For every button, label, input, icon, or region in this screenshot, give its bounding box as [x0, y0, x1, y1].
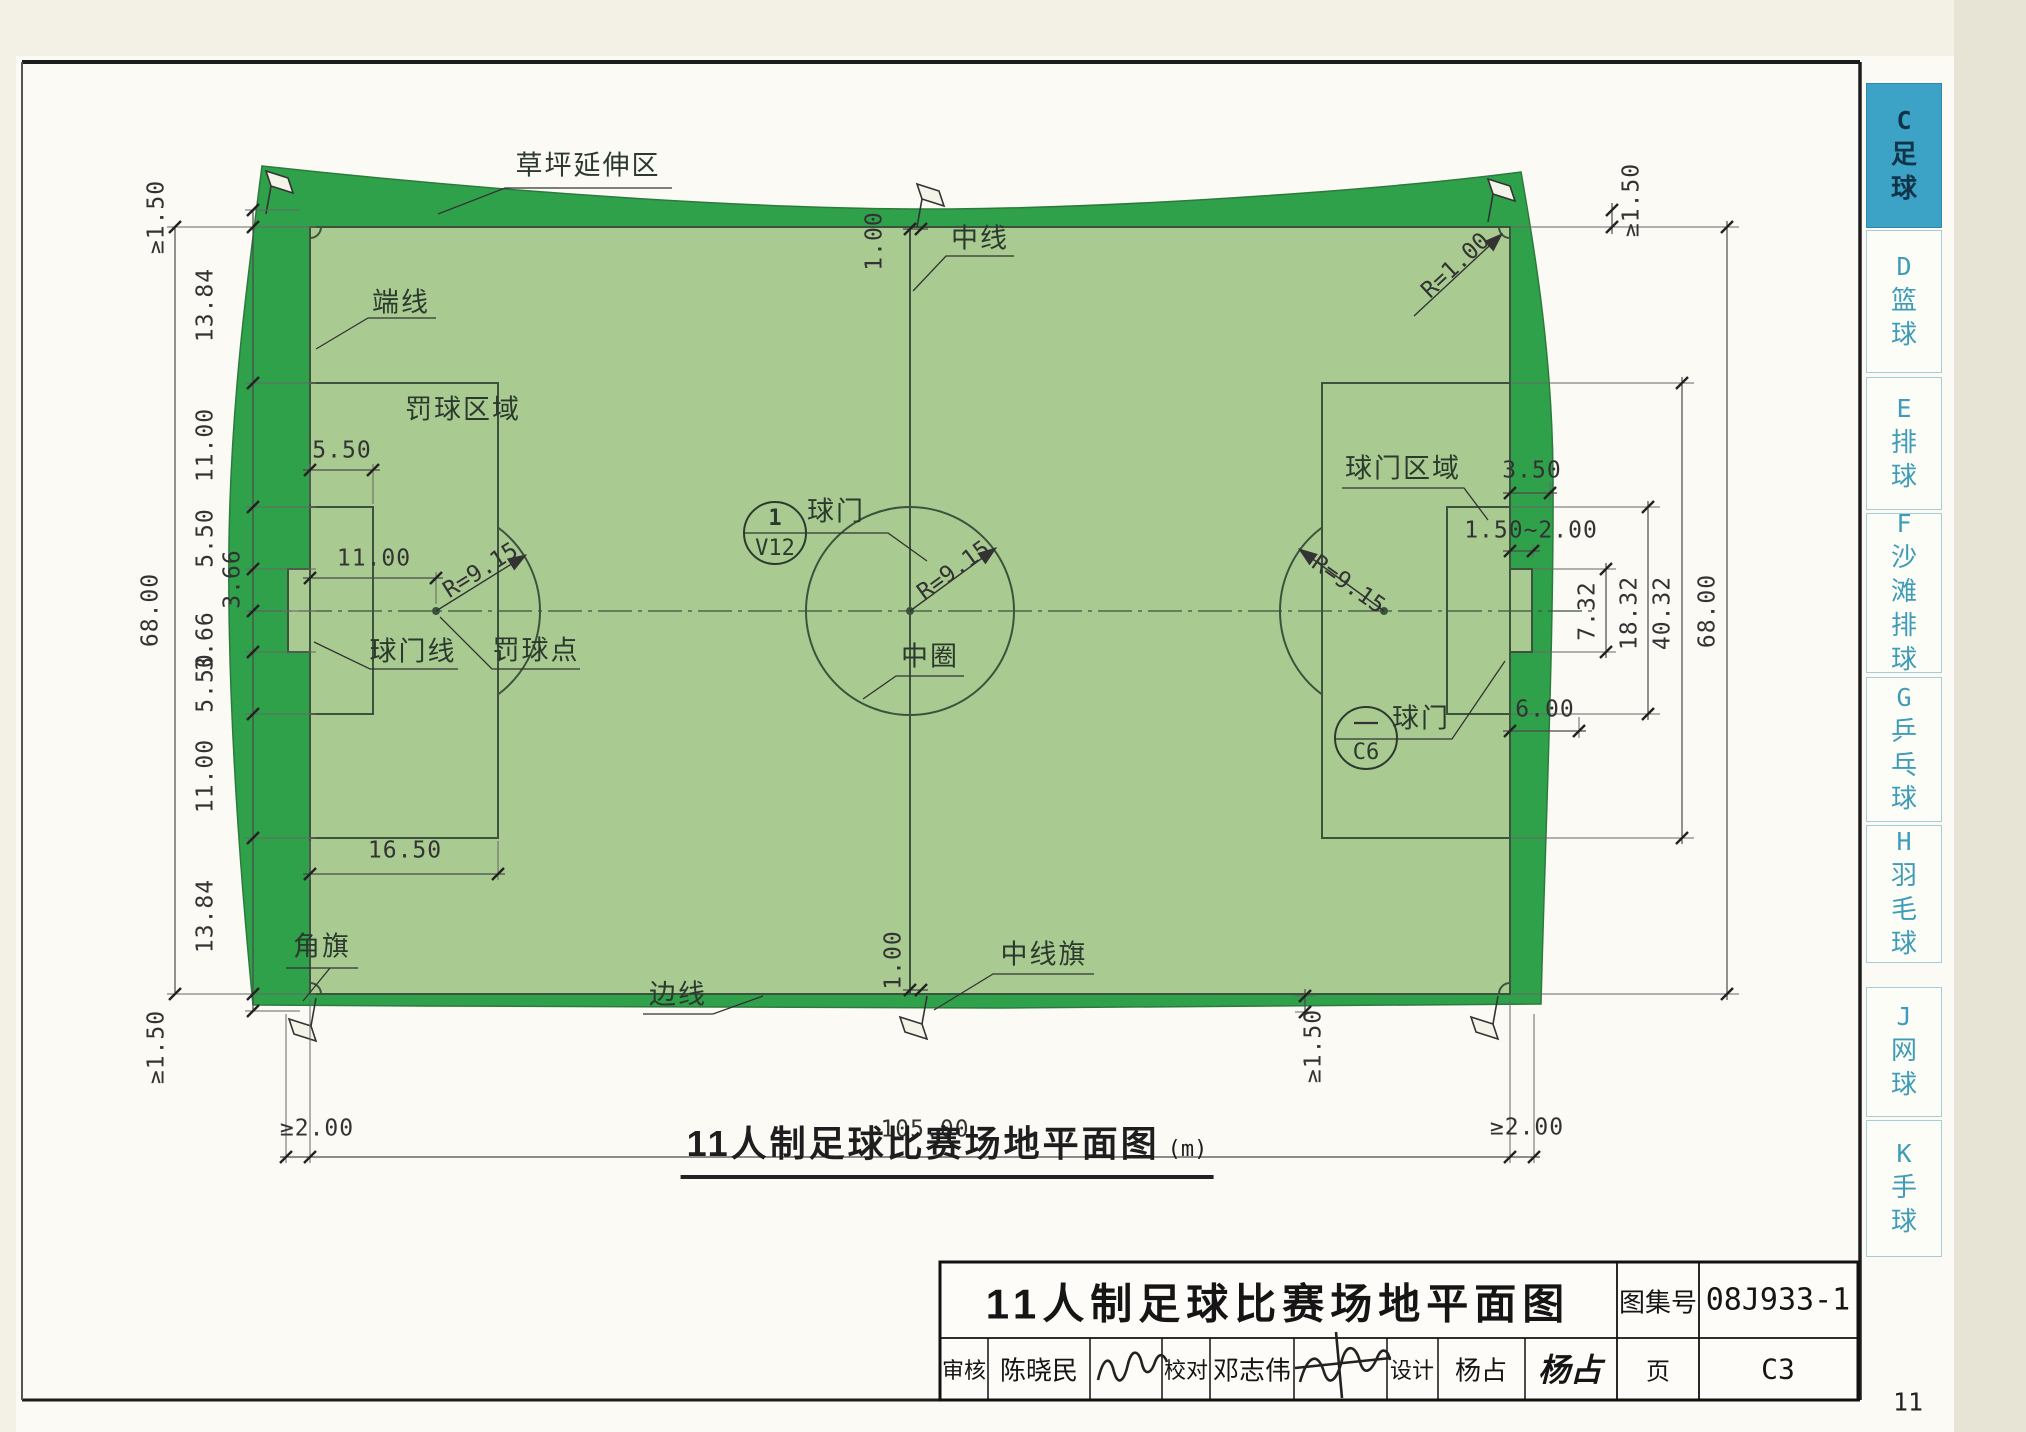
label-end-line: 端线 [372, 290, 430, 317]
tab-badminton: H羽毛球 [1866, 825, 1942, 963]
titleblock-atlas-no: 08J933-1 [1706, 1283, 1851, 1318]
dim-ge150-br: ≥1.50 [1303, 1009, 1326, 1083]
titleblock-designer: 杨占 [1455, 1351, 1507, 1388]
titleblock-proofreader: 邓志伟 [1213, 1351, 1291, 1388]
caption-unit: (m) [1168, 1137, 1208, 1162]
tab-volleyball: E排球 [1866, 377, 1942, 510]
dim-goal-width: 7.32 [1577, 581, 1600, 640]
dim-chain-5: 5.50 [195, 653, 218, 712]
titleblock-title: 11人制足球比赛场地平面图 [986, 1271, 1570, 1332]
label-lawn-extension: 草坪延伸区 [516, 153, 661, 180]
dim-chain-0: 13.84 [195, 268, 218, 342]
dim-ge150-tl: ≥1.50 [146, 180, 169, 254]
titleblock-design-label: 设计 [1390, 1353, 1434, 1385]
label-penalty-spot: 罚球点 [493, 638, 580, 665]
label-goal-line: 球门线 [370, 639, 457, 666]
dim-goal-area-depth: 5.50 [312, 440, 371, 463]
detail-ref-left-num: 1 [768, 508, 781, 530]
dim-ge150-bl: ≥1.50 [146, 1010, 169, 1084]
label-center-circle: 中圈 [901, 644, 959, 671]
dim-field-width-right: 68.00 [1697, 574, 1720, 648]
dim-chain-2: 5.50 [195, 508, 218, 567]
label-corner-flag: 角旗 [293, 934, 351, 961]
dim-flag-offset-bottom: 1.00 [883, 930, 906, 989]
scanned-atlas-page: 草坪延伸区 端线 罚球区域 球门线 罚球点 中线 中圈 球门 球门 球门区域 角… [0, 0, 2026, 1432]
titleblock-page-label: 页 [1646, 1352, 1670, 1387]
figure-caption: 11人制足球比赛场地平面图(m) [681, 1115, 1214, 1179]
tab-football: C足球 [1866, 83, 1942, 228]
drawing-linework [0, 0, 2026, 1432]
titleblock-reviewer: 陈晓民 [1000, 1351, 1078, 1388]
label-penalty-area: 罚球区域 [405, 397, 521, 424]
label-goal-left: 球门 [807, 499, 865, 526]
label-goal-right: 球门 [1392, 706, 1450, 733]
dim-150-200: 1.50~2.00 [1464, 520, 1598, 543]
dim-penalty-width: 40.32 [1652, 576, 1675, 650]
titleblock-review-label: 审核 [942, 1353, 986, 1385]
titleblock-proof-label: 校对 [1164, 1353, 1208, 1385]
detail-ref-right-sheet: C6 [1353, 742, 1380, 764]
tab-table-tennis: G乒乓球 [1866, 677, 1942, 822]
dim-chain-3: 3.66 [222, 549, 245, 608]
dim-field-width-left: 68.00 [140, 573, 163, 647]
dim-ge200-left: ≥2.00 [280, 1118, 354, 1141]
tab-handball: K手球 [1866, 1120, 1942, 1257]
dim-penalty-dist: 11.00 [337, 548, 411, 571]
dim-chain-7: 13.84 [195, 879, 218, 953]
dim-chain-1: 11.00 [195, 408, 218, 482]
titleblock-page-no: C3 [1761, 1353, 1795, 1386]
tab-beach-volleyball: F沙滩排球 [1866, 513, 1942, 673]
label-side-line: 边线 [649, 982, 707, 1009]
tab-tennis: J网球 [1866, 987, 1942, 1117]
dim-goal-area-width: 18.32 [1619, 576, 1642, 650]
detail-ref-left-sheet: V12 [755, 538, 795, 560]
dim-flag-offset-top: 1.00 [864, 211, 887, 270]
dim-ge150-tr: ≥1.50 [1621, 163, 1644, 237]
dim-350: 3.50 [1502, 460, 1561, 483]
titleblock-designer-signature: 杨占 [1538, 1345, 1602, 1391]
page-number: 11 [1893, 1388, 1923, 1417]
tab-basketball: D篮球 [1866, 230, 1942, 373]
caption-text: 11人制足球比赛场地平面图 [687, 1123, 1160, 1164]
dim-chain-6: 11.00 [195, 739, 218, 813]
label-center-line: 中线 [951, 226, 1009, 253]
label-goal-area: 球门区域 [1345, 456, 1461, 483]
dim-ge200-right: ≥2.00 [1490, 1117, 1564, 1140]
dim-penalty-depth: 16.50 [368, 840, 442, 863]
titleblock-atlas-label: 图集号 [1619, 1283, 1697, 1320]
label-center-line-flag: 中线旗 [1001, 942, 1088, 969]
dim-600: 6.00 [1515, 699, 1574, 722]
